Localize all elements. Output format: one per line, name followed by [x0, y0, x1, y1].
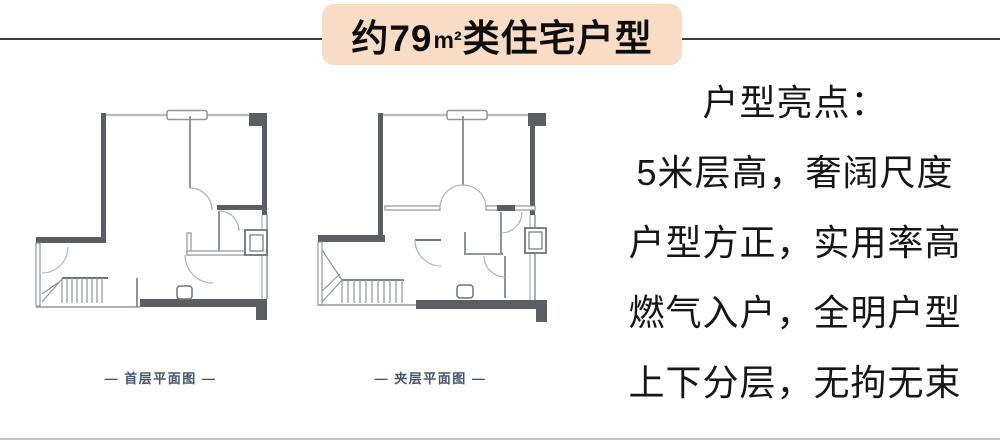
exterior-walls: [318, 113, 547, 322]
title-area-value: 约79: [351, 18, 432, 59]
interior-walls: [385, 116, 535, 298]
square-meter-unit: m²: [433, 27, 463, 53]
highlight-item: 5米层高，奢阔尺度: [598, 138, 992, 208]
highlights-panel: 户型亮点： 5米层高，奢阔尺度 户型方正，实用率高 燃气入户，全明户型 上下分层…: [598, 68, 992, 418]
interior-walls: [137, 116, 263, 307]
first-floor-plan-drawing: [28, 98, 293, 333]
staircase-icon: [322, 250, 404, 303]
first-floor-plan-figure: — 首层平面图 —: [28, 98, 293, 398]
mezzanine-plan-drawing: [298, 98, 563, 333]
title-banner: 约79m²类住宅户型: [322, 4, 682, 65]
title-suffix: 类住宅户型: [463, 18, 653, 59]
floor-plan-slide: { "title": { "prefix": "约79", "unit": "m…: [0, 0, 1000, 441]
window-icons: [167, 111, 267, 300]
staircase-icon: [42, 278, 108, 303]
toilet-icon: [177, 286, 192, 299]
highlight-item: 上下分层，无拘无束: [598, 348, 992, 418]
first-floor-plan-label: — 首层平面图 —: [28, 368, 293, 387]
mezzanine-plan-figure: — 夹层平面图 —: [298, 98, 563, 398]
page-title: 约79m²类住宅户型: [351, 8, 652, 62]
door-arc-icons: [42, 188, 239, 283]
highlights-heading: 户型亮点：: [598, 68, 992, 138]
highlight-item: 燃气入户，全明户型: [598, 278, 992, 348]
mezzanine-plan-label: — 夹层平面图 —: [298, 368, 563, 387]
highlight-item: 户型方正，实用率高: [598, 208, 992, 278]
bottom-divider-line: [0, 438, 1000, 440]
toilet-icon: [457, 285, 473, 298]
